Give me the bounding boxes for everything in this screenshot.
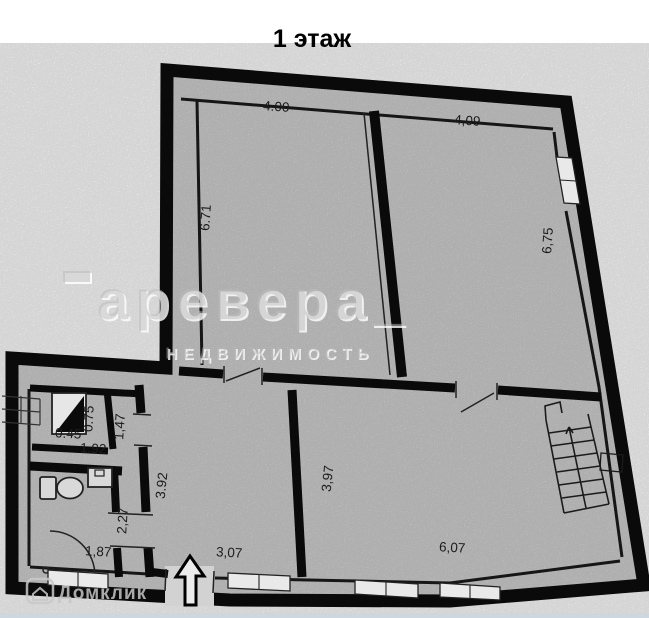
brand-watermark-text: аревера_ [97,268,411,331]
portal-watermark-text: Домклик [58,583,147,604]
dimension-label: 6.71 [197,204,214,231]
footer-strip [0,613,649,618]
dimension-label: 3,97 [319,465,337,493]
window-bottom-corridor [228,573,290,591]
paper-noise [12,70,644,601]
dimension-label: 6,75 [539,227,556,254]
brand-bar-icon [63,271,90,282]
dimension-label: 3.92 [153,472,171,500]
dimension-label: 3,07 [216,544,243,560]
dimension-label: 4.00 [263,98,290,115]
dimension-label: 1,87 [85,543,112,559]
dimension-label: 6,07 [439,539,466,555]
sink-icon [88,468,112,487]
brand-watermark-subtext: НЕДВИЖИМОСТЬ [166,346,374,363]
dimension-label: 1,47 [111,413,128,440]
dimension-label: 0.45 [55,425,82,441]
toilet-icon [40,477,83,499]
floor-plan-svg: 1 этаж [0,0,649,618]
dimension-label: 0.75 [80,405,96,432]
page-title: 1 этаж [273,25,351,53]
building-footprint [12,70,644,601]
dimension-label: 1.92 [80,440,107,456]
dimension-label: 4,09 [454,112,481,129]
dimension-label: 2,27 [114,507,131,534]
brand-watermark: аревера_ аревера_ НЕДВИЖИМОСТЬ НЕДВИЖИМО… [63,268,413,364]
